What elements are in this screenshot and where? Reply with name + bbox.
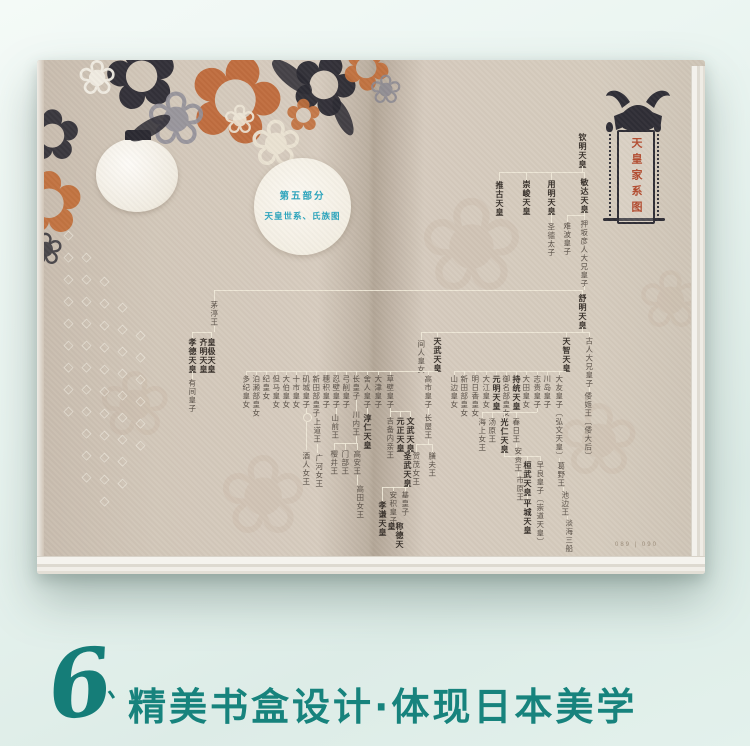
tree-line [421,332,422,340]
tree-node: 市原王 [516,476,524,502]
tree-line [266,371,267,375]
tree-node: 大田皇女 [522,375,530,409]
tree-node: 山边皇女 [450,375,458,409]
section-title: 天皇世系、氏族图 [254,210,351,222]
kabuto-helmet-icon [600,86,676,138]
tree-node: 推古天皇 [495,181,503,217]
tree-line [582,290,583,294]
tree-line [356,436,357,443]
tree-line [551,213,552,223]
tree-line [526,172,527,180]
tree-node: 高田女王 [356,485,364,519]
tree-line [464,371,465,375]
tree-node: 大津皇子 [374,375,382,409]
floral-watermark: ❀ [217,440,309,550]
tree-line [192,332,212,333]
tree-line [567,215,585,216]
diamond-lattice-column: ◇◇◇◇◇◇◇◇◇◇◇ [99,274,112,516]
tree-node: 长屋王 [424,414,432,440]
caption-text: 精美书盒设计·体现日本美学 [128,676,637,731]
tree-node: 古人大兄皇子 [585,337,593,388]
tree-node: 门部王 [341,450,349,476]
tree-line [416,444,432,445]
tree-line [410,411,411,417]
flower-icon: ❀ [145,82,207,156]
flower-icon: ✿ [96,60,188,128]
tree-line [316,371,317,375]
tree-line [390,411,410,412]
paper-lantern-illustration [96,138,178,212]
page-edge-left [37,60,44,557]
tree-line [516,443,517,447]
tree-node: 平城天皇 [523,499,531,535]
page-number: 089 | 090 [615,542,658,548]
tree-node: 樱井王 [330,450,338,476]
tree-line [378,371,379,375]
diamond-lattice-column: ◇◇◇◇◇◇ [135,328,148,460]
tree-line [559,458,560,462]
leaf-shape [126,110,174,147]
tree-line [214,326,215,332]
diamond-lattice-column: ◇◇◇◇◇◇◇◇◇ [117,300,130,498]
tree-node: 安积皇子 [389,491,397,525]
tree-line [306,422,307,450]
tree-line [276,371,277,375]
tree-node: 贺茂女王 [412,452,420,486]
tree-line [428,408,429,414]
tree-node: 上道王 [313,418,321,444]
tassel-right [657,134,659,220]
tree-line [527,456,528,461]
tree-node: 淳仁天皇 [363,414,371,450]
tree-line [454,371,566,372]
tree-line [486,371,487,375]
tree-node: 间人皇女 [417,340,425,374]
diamond-lattice-column: ◇◇◇◇◇◇◇◇◇ [63,228,76,426]
floral-watermark: ❀ [417,180,526,310]
tree-node: 孝德天皇 [188,338,196,374]
leaf-shape [328,96,358,138]
tree-node: 大伯皇女 [282,375,290,409]
tree-line [336,408,337,414]
tree-line [211,332,212,338]
tree-node: 皇极天皇 齐明天皇 [199,338,215,374]
tree-line [504,412,505,418]
tree-node: 用明天皇 [547,180,555,216]
flower-icon: ✿ [37,160,85,246]
tree-line [428,371,429,375]
tree-line [540,456,541,461]
tree-line [390,408,391,411]
tree-node: 酒人女王 [302,452,310,486]
open-book-photo: ❀❀❀❀❀ ◇◇◇◇◇◇◇◇◇◇◇◇◇◇◇◇◇◇◇◇◇◇◇◇◇◇◇◇◇◇◇◇◇◇… [37,60,705,574]
tree-line [504,451,505,456]
tree-line [518,472,519,476]
tree-node: 圣武天皇 [403,452,411,488]
tree-line [246,371,247,375]
tree-line [504,456,540,457]
tree-node: 高安王 [353,450,361,476]
tree-node: 孝谦天皇 [378,501,386,537]
tree-line [584,286,585,290]
tree-line [567,516,568,519]
tree-line [499,172,500,180]
tree-line [482,412,483,418]
tree-line [410,450,411,452]
tree-node: 安贵王 [514,447,522,473]
tree-line [584,211,585,215]
tree-node: 茅渟王 [210,301,218,327]
tree-node: 早良皇子〔崇道天皇〕 [536,461,544,546]
tree-circle-node [303,413,312,422]
tree-line [499,172,585,173]
tree-line [526,371,527,375]
tree-node: 文武天皇 [406,417,414,453]
tree-line [336,371,337,375]
tree-line [582,166,583,172]
crest-frame: 天皇家系图 [617,130,655,224]
diamond-lattice-column: ◇◇◇◇◇◇◇◇◇◇◇ [81,250,94,492]
tree-line [584,215,585,220]
tree-node: 天武天皇 [433,337,441,373]
cord-knob-left [606,122,613,132]
family-tree: 钦明天皇推古天皇崇峻天皇用明天皇敏达天皇圣德太子难波皇子押坂彦人大兄皇子舒明天皇… [37,60,705,557]
tree-node: 志贵皇子 [533,375,541,409]
tree-line [516,412,517,418]
tree-node: 膳夫王 [428,452,436,478]
tree-node: 基皇子 [401,491,409,517]
marketing-caption: 6 、 精美书盒设计·体现日本美学 [0,636,750,746]
tree-node: 草壁皇子 [386,375,394,409]
tree-line [286,371,287,375]
tree-node: 广河女王 [315,454,323,488]
tree-line [559,371,560,375]
tree-node: 桓武天皇 [523,461,531,497]
tree-line [334,443,357,444]
tree-node: 光仁天皇 [500,418,508,454]
tree-node: 御名部皇女 [502,375,510,418]
tree-line [400,411,401,417]
tree-line [390,411,391,417]
tree-line [357,475,358,485]
tree-node: 元正天皇 [396,417,404,453]
tree-node: 天智天皇 [562,337,570,373]
floral-watermark: ❀ [97,360,172,450]
tree-line [563,487,564,491]
tree-line [421,332,589,333]
tree-line [405,487,406,491]
tree-line [256,371,257,375]
tree-node: 大江皇女 [482,375,490,409]
tree-node: 海上女王 [478,418,486,452]
tree-node: 明日香皇女 [471,375,479,418]
family-tree-title: 天皇家系图 [628,137,644,217]
page-edge-right [691,66,705,557]
tree-line [516,371,517,375]
tree-line [454,371,455,375]
tree-line [246,371,438,372]
tree-line [192,371,193,379]
product-image: ❀❀❀❀❀ ◇◇◇◇◇◇◇◇◇◇◇◇◇◇◇◇◇◇◇◇◇◇◇◇◇◇◇◇◇◇◇◇◇◇… [0,0,750,746]
tree-line [547,371,548,375]
tree-node: 称德天皇 [387,522,403,557]
tree-line [589,387,590,392]
tree-line [537,371,538,375]
tree-node: 山前王 [331,414,339,440]
flower-icon: ❀ [223,100,257,140]
tree-node: 大友皇子〔弘文天皇〕 [555,375,563,460]
section-badge: 第五部分 天皇世系、氏族图 [254,158,351,255]
tree-line [416,444,417,452]
tree-line [475,371,476,375]
tree-node: 敏达天皇 [580,178,588,214]
page-edge-bottom [37,556,705,574]
tree-line [584,172,585,178]
tree-node: 高市皇子 [424,375,432,409]
tree-node: 汤原王 [488,418,496,444]
tree-line [566,332,567,337]
tree-line [214,290,215,301]
tree-node: 倭姬王〔倭大后〕 [584,392,592,460]
tree-node: 持统天皇 [512,375,520,411]
flower-icon: ✿ [329,60,403,107]
tree-line [306,408,307,413]
flower-icon: ✿ [277,60,372,136]
tree-node: 押坂彦人大兄皇子 [580,220,588,288]
tree-node: 忍壁皇子 [332,375,340,409]
tree-line [382,487,408,488]
tree-node: 春日王 [512,418,520,444]
tree-node: 纪皇女 [262,375,270,401]
tree-line [582,327,583,332]
flower-icon: ❀ [249,112,303,176]
tree-node: 泊濑部皇女 [252,375,260,418]
tree-node: 钦明天皇 [578,133,586,169]
tree-line [482,412,537,413]
tree-line [390,371,391,375]
tree-line [492,412,493,418]
tree-line [317,444,318,453]
tree-node: 圣德太子 [547,223,555,257]
tree-node: 崇峻天皇 [522,180,530,216]
leaf-shape [267,60,317,100]
cord-knob-right [654,122,661,132]
tree-node: 但马皇女 [272,375,280,409]
section-number: 第五部分 [254,188,351,202]
tree-node: 弓削皇子 [342,375,350,409]
tree-node: 穗积皇子 [322,375,330,409]
tree-node: 舒明天皇 [578,294,586,330]
tree-node: 淡海三船 [565,519,573,553]
caption-numeral: 6 [42,634,118,734]
tree-node: 新田部皇子 [312,375,320,418]
tree-line [356,400,357,411]
tree-line [382,487,383,501]
tree-line [345,443,346,450]
tree-node: 川内王 [352,411,360,437]
frame-base-bar [603,218,665,221]
tree-line [537,408,538,412]
tree-line [367,371,368,375]
flower-icon: ❀ [77,60,117,102]
tree-node: 新田部皇女 [460,375,468,418]
book-pages: ❀❀❀❀❀ ◇◇◇◇◇◇◇◇◇◇◇◇◇◇◇◇◇◇◇◇◇◇◇◇◇◇◇◇◇◇◇◇◇◇… [37,60,705,557]
tree-line [527,494,528,499]
tree-node: 难波皇子 [563,222,571,256]
lantern-cap [125,130,151,140]
tree-line [428,439,429,444]
tree-node: 吉备内亲王 [386,417,394,460]
tree-node: 舍人皇子 [363,375,371,409]
flower-icon: ✿ [285,94,322,138]
tree-node: 多纪皇女 [242,375,250,409]
tree-line [192,332,193,338]
tree-node: 元明天皇 [492,375,500,411]
floral-watermark: ❀ [557,390,641,490]
tassel-left [609,134,611,220]
tree-line [432,444,433,452]
tree-node: 葛野王 [557,462,565,488]
tree-line [567,215,568,222]
tree-line [551,172,552,180]
tree-node: 十市皇女 [292,375,300,409]
tree-line [506,371,507,375]
tree-node: 川岛皇子 [543,375,551,409]
flower-icon: ✿ [171,60,299,171]
tree-line [346,371,347,375]
tree-node: 矶城皇子 [302,375,310,409]
tree-line [393,487,394,491]
tree-line [408,485,409,487]
tree-line [357,443,358,450]
tree-line [589,332,590,337]
tree-line [367,408,368,414]
tree-line [496,371,497,375]
tree-line [356,371,357,375]
tree-line [296,371,297,375]
tree-line [334,443,335,450]
tree-line [306,371,307,375]
tree-line [437,332,438,337]
tree-node: 长皇子 [352,375,360,401]
flower-icon: ❀ [369,70,403,110]
tree-line [214,290,583,291]
tree-node: 池边王 [561,491,569,517]
tree-node: 有间皇子 [188,379,196,413]
tree-line [326,371,327,375]
